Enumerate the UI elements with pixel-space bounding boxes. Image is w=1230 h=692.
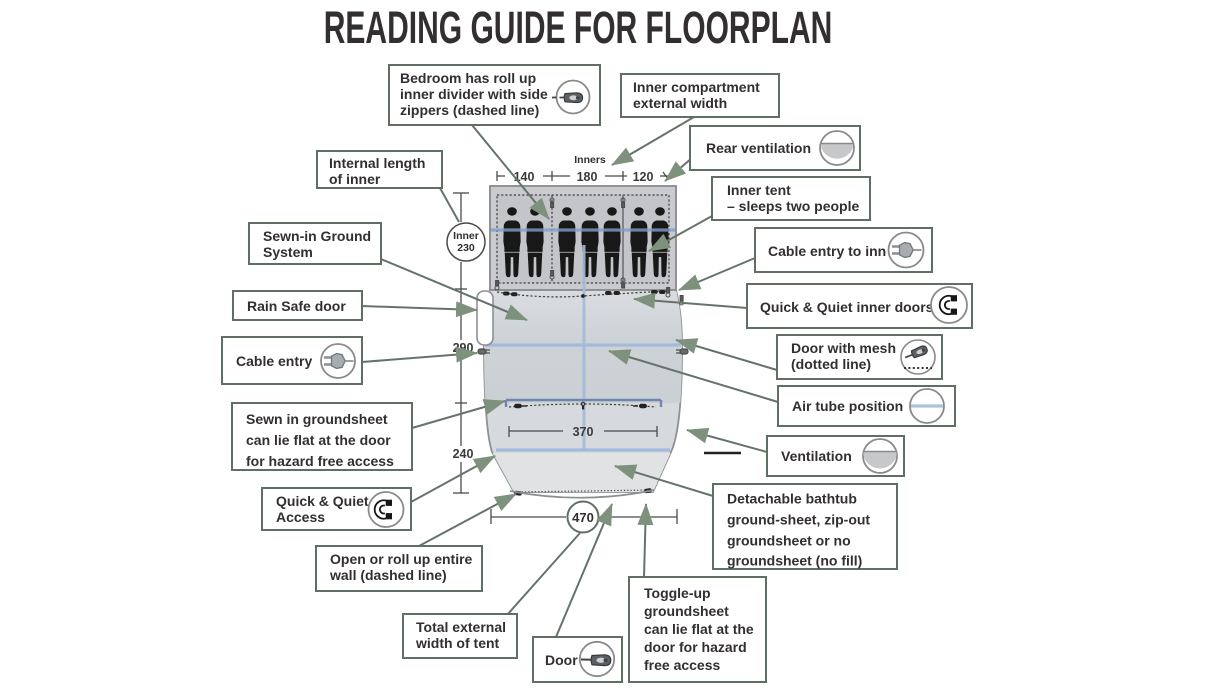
svg-text:for hazard free access: for hazard free access [246,453,394,469]
svg-text:Access: Access [276,509,325,525]
svg-text:zippers (dashed line): zippers (dashed line) [400,102,539,118]
svg-text:inner divider with side: inner divider with side [400,86,548,102]
svg-text:Toggle-up: Toggle-up [644,585,711,601]
svg-text:Quick & Quiet: Quick & Quiet [276,493,369,509]
svg-text:Rain Safe door: Rain Safe door [247,298,346,314]
svg-text:– sleeps two people: – sleeps two people [727,198,859,214]
svg-text:Rear ventilation: Rear ventilation [706,140,811,156]
svg-text:140: 140 [514,170,535,184]
svg-text:can lie flat at the door: can lie flat at the door [246,432,391,448]
svg-text:Door with mesh: Door with mesh [791,340,896,356]
svg-text:Door: Door [545,652,578,668]
svg-text:ground-sheet, zip-out: ground-sheet, zip-out [727,512,870,528]
svg-text:READING GUIDE FOR FLOORPLAN: READING GUIDE FOR FLOORPLAN [324,3,833,54]
svg-text:Quick & Quiet inner doors: Quick & Quiet inner doors [760,299,934,315]
svg-text:370: 370 [573,425,594,439]
svg-text:Air tube position: Air tube position [792,398,903,414]
svg-text:180: 180 [577,170,598,184]
svg-text:Cable entry: Cable entry [236,353,312,369]
svg-text:470: 470 [572,510,594,525]
svg-text:Sewn in groundsheet: Sewn in groundsheet [246,411,388,427]
svg-text:can lie flat at the: can lie flat at the [644,621,754,637]
svg-text:width of tent: width of tent [415,635,500,651]
svg-text:240: 240 [453,447,474,461]
svg-text:groundsheet or no: groundsheet or no [727,533,851,549]
svg-text:120: 120 [633,170,654,184]
svg-text:Inner compartment: Inner compartment [633,79,760,95]
svg-text:Cable entry to inn: Cable entry to inn [768,243,886,259]
svg-text:of inner: of inner [329,171,381,187]
svg-text:230: 230 [457,242,475,254]
svg-text:Total external: Total external [416,619,506,635]
svg-text:Inner: Inner [453,230,479,242]
svg-text:Bedroom has roll up: Bedroom has roll up [400,70,536,86]
svg-text:external width: external width [633,95,727,111]
svg-text:door for hazard: door for hazard [644,639,747,655]
svg-text:Detachable bathtub: Detachable bathtub [727,491,857,507]
svg-text:System: System [263,244,313,260]
svg-text:Inners: Inners [574,154,606,166]
svg-text:free access: free access [644,657,721,673]
svg-text:Ventilation: Ventilation [781,448,852,464]
svg-text:Inner tent: Inner tent [727,182,791,198]
svg-text:(dotted line): (dotted line) [791,356,871,372]
svg-text:groundsheet (no fill): groundsheet (no fill) [727,553,862,569]
svg-text:Open or roll up entire: Open or roll up entire [330,551,473,567]
svg-text:groundsheet: groundsheet [644,603,729,619]
svg-text:wall (dashed line): wall (dashed line) [329,567,447,583]
svg-text:Internal length: Internal length [329,155,425,171]
svg-text:Sewn-in Ground: Sewn-in Ground [263,228,371,244]
